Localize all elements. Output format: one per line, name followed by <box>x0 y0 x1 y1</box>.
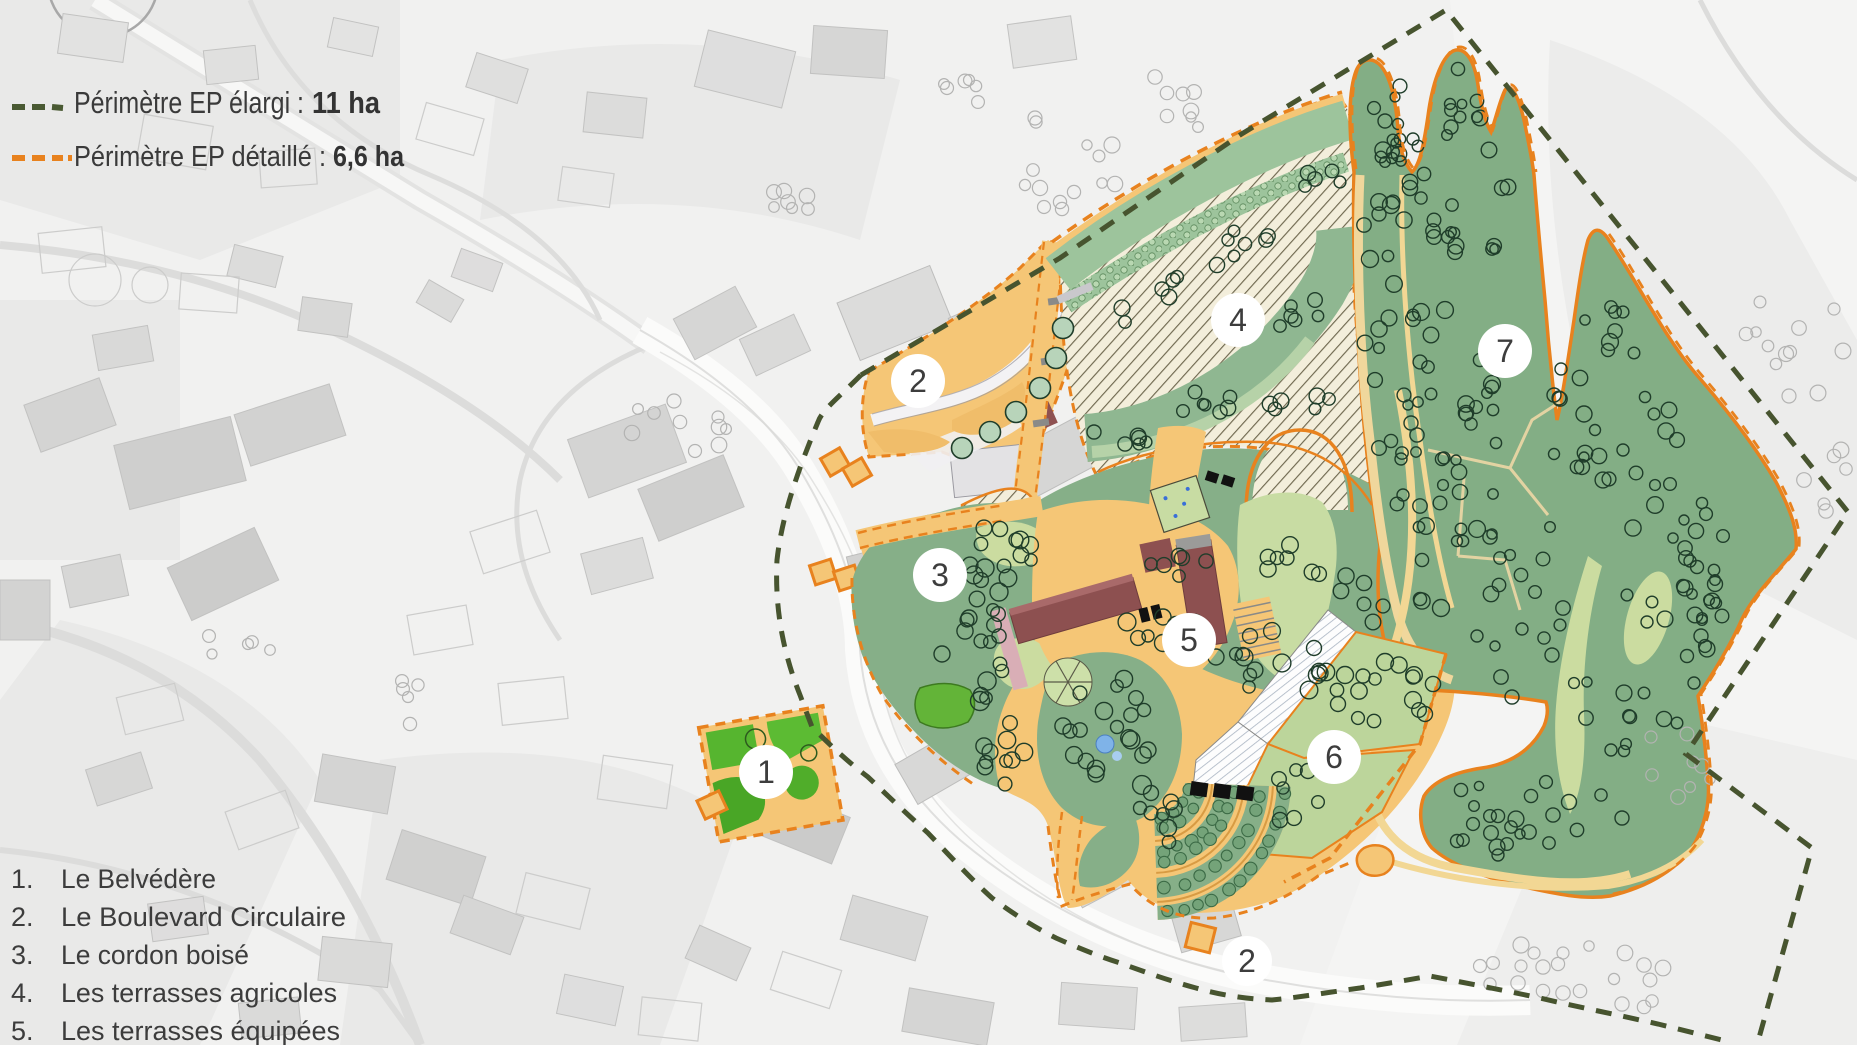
svg-text:1: 1 <box>757 754 775 790</box>
svg-text:3: 3 <box>931 557 949 593</box>
svg-text:2.: 2. <box>11 902 34 932</box>
svg-text:Les terrasses équipées: Les terrasses équipées <box>61 1016 340 1045</box>
svg-text:1.: 1. <box>11 864 34 894</box>
svg-text:5: 5 <box>1180 622 1198 658</box>
svg-text:6: 6 <box>1325 739 1343 775</box>
svg-text:7: 7 <box>1496 333 1514 369</box>
svg-text:Périmètre EP élargi :: Périmètre EP élargi : <box>74 85 304 120</box>
svg-text:5.: 5. <box>11 1016 34 1045</box>
svg-text:3.: 3. <box>11 940 34 970</box>
svg-text:2: 2 <box>909 363 927 399</box>
svg-text:Périmètre EP détaillé :: Périmètre EP détaillé : <box>74 141 326 173</box>
svg-text:Le Belvédère: Le Belvédère <box>61 864 216 894</box>
svg-text:4: 4 <box>1229 302 1247 338</box>
svg-text:2: 2 <box>1238 943 1256 979</box>
svg-text:Les terrasses agricoles: Les terrasses agricoles <box>61 978 337 1008</box>
svg-text:4.: 4. <box>11 978 34 1008</box>
svg-text:6,6 ha: 6,6 ha <box>333 141 405 173</box>
svg-text:Le Boulevard Circulaire: Le Boulevard Circulaire <box>61 902 346 932</box>
svg-text:Le cordon boisé: Le cordon boisé <box>61 940 249 970</box>
svg-text:11 ha: 11 ha <box>312 85 381 120</box>
